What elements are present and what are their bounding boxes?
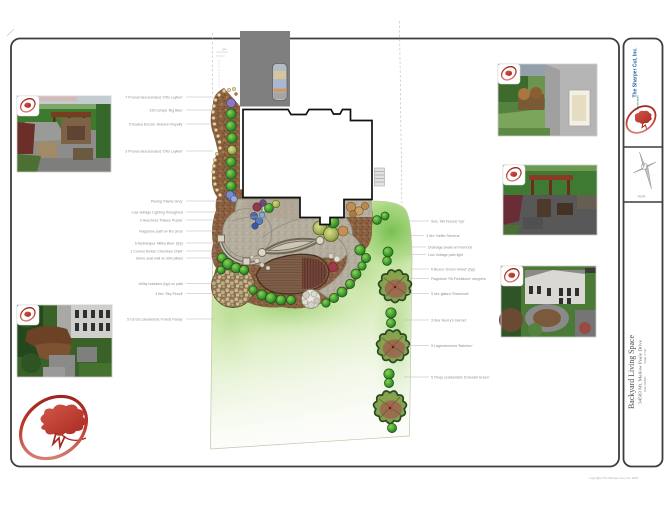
svg-text:Flagstone 'PA Fieldstone' step: Flagstone 'PA Fieldstone' steppers [431, 277, 486, 281]
svg-text:6 Buxus 'Green Velvet' (typ): 6 Buxus 'Green Velvet' (typ) [431, 268, 475, 272]
svg-text:Stone seat wall w/ 30in pillar: Stone seat wall w/ 30in pillars [136, 257, 183, 261]
svg-text:150 Liriope 'Big Blue': 150 Liriope 'Big Blue' [149, 109, 183, 113]
svg-text:5 Cercis canadensis 'Forest Pa: 5 Cercis canadensis 'Forest Pansy' [127, 318, 183, 322]
svg-text:Drainage swale w/ riverrock: Drainage swale w/ riverrock [428, 246, 472, 250]
svg-text:3 Ilex 'Sky Pencil': 3 Ilex 'Sky Pencil' [155, 292, 183, 296]
svg-text:3 Heuchera 'Palace Purple': 3 Heuchera 'Palace Purple' [140, 219, 184, 223]
svg-text:3 Prunus laurocerasus 'Otto Lu: 3 Prunus laurocerasus 'Otto Luyken' [125, 150, 183, 154]
svg-text:5 Thuja occidentalis 'Emerald: 5 Thuja occidentalis 'Emerald Green' [431, 376, 490, 380]
svg-text:Low Voltage Lighting throughou: Low Voltage Lighting throughout [132, 211, 183, 215]
svg-text:The Sharper Cut, Inc.: The Sharper Cut, Inc. [633, 47, 639, 97]
svg-text:5 Lagerstroemia 'Natchez': 5 Lagerstroemia 'Natchez' [431, 344, 473, 348]
svg-text:3 Itea 'Henry's Garnet': 3 Itea 'Henry's Garnet' [431, 319, 467, 323]
svg-text:5 Ilex glabra 'Shamrock': 5 Ilex glabra 'Shamrock' [431, 292, 469, 296]
svg-text:Paving 'Flame Grey': Paving 'Flame Grey' [151, 200, 183, 204]
svg-text:7 Prunus laurocerasus 'Otto Lu: 7 Prunus laurocerasus 'Otto Luyken' [125, 96, 183, 100]
svg-text:Scale: 1"=10': Scale: 1"=10' [643, 348, 647, 364]
svg-text:Date: 5/13/07: Date: 5/13/07 [643, 376, 647, 392]
svg-text:Sod, Tall Fescue 'typ': Sod, Tall Fescue 'typ' [431, 220, 465, 224]
svg-text:copyright The Sharper Cut, Inc: copyright The Sharper Cut, Inc. 2007 [589, 476, 638, 480]
svg-text:gas: gas [222, 47, 227, 51]
svg-text:Utility boulders (typ) w/ path: Utility boulders (typ) w/ path [139, 282, 183, 286]
svg-text:34503 Mt. Mallow Peale Drive: 34503 Mt. Mallow Peale Drive [639, 340, 643, 404]
svg-text:North: North [638, 195, 646, 199]
svg-text:3 Ilex 'Nellie Stevens': 3 Ilex 'Nellie Stevens' [426, 234, 460, 238]
svg-text:Backyard Living Space: Backyard Living Space [627, 335, 636, 409]
svg-text:5 Hydrangea 'Nikko Blue' (typ): 5 Hydrangea 'Nikko Blue' (typ) [135, 242, 183, 246]
svg-text:5 Azalea Encore 'Autumn Royalt: 5 Azalea Encore 'Autumn Royalty' [129, 123, 183, 127]
svg-text:1 Cornus florida 'Cherokee Chi: 1 Cornus florida 'Cherokee Chief' [130, 250, 183, 254]
svg-text:Low Voltage path light: Low Voltage path light [428, 253, 463, 257]
svg-text:Flagstone path w/ fire circle: Flagstone path w/ fire circle [139, 230, 183, 234]
